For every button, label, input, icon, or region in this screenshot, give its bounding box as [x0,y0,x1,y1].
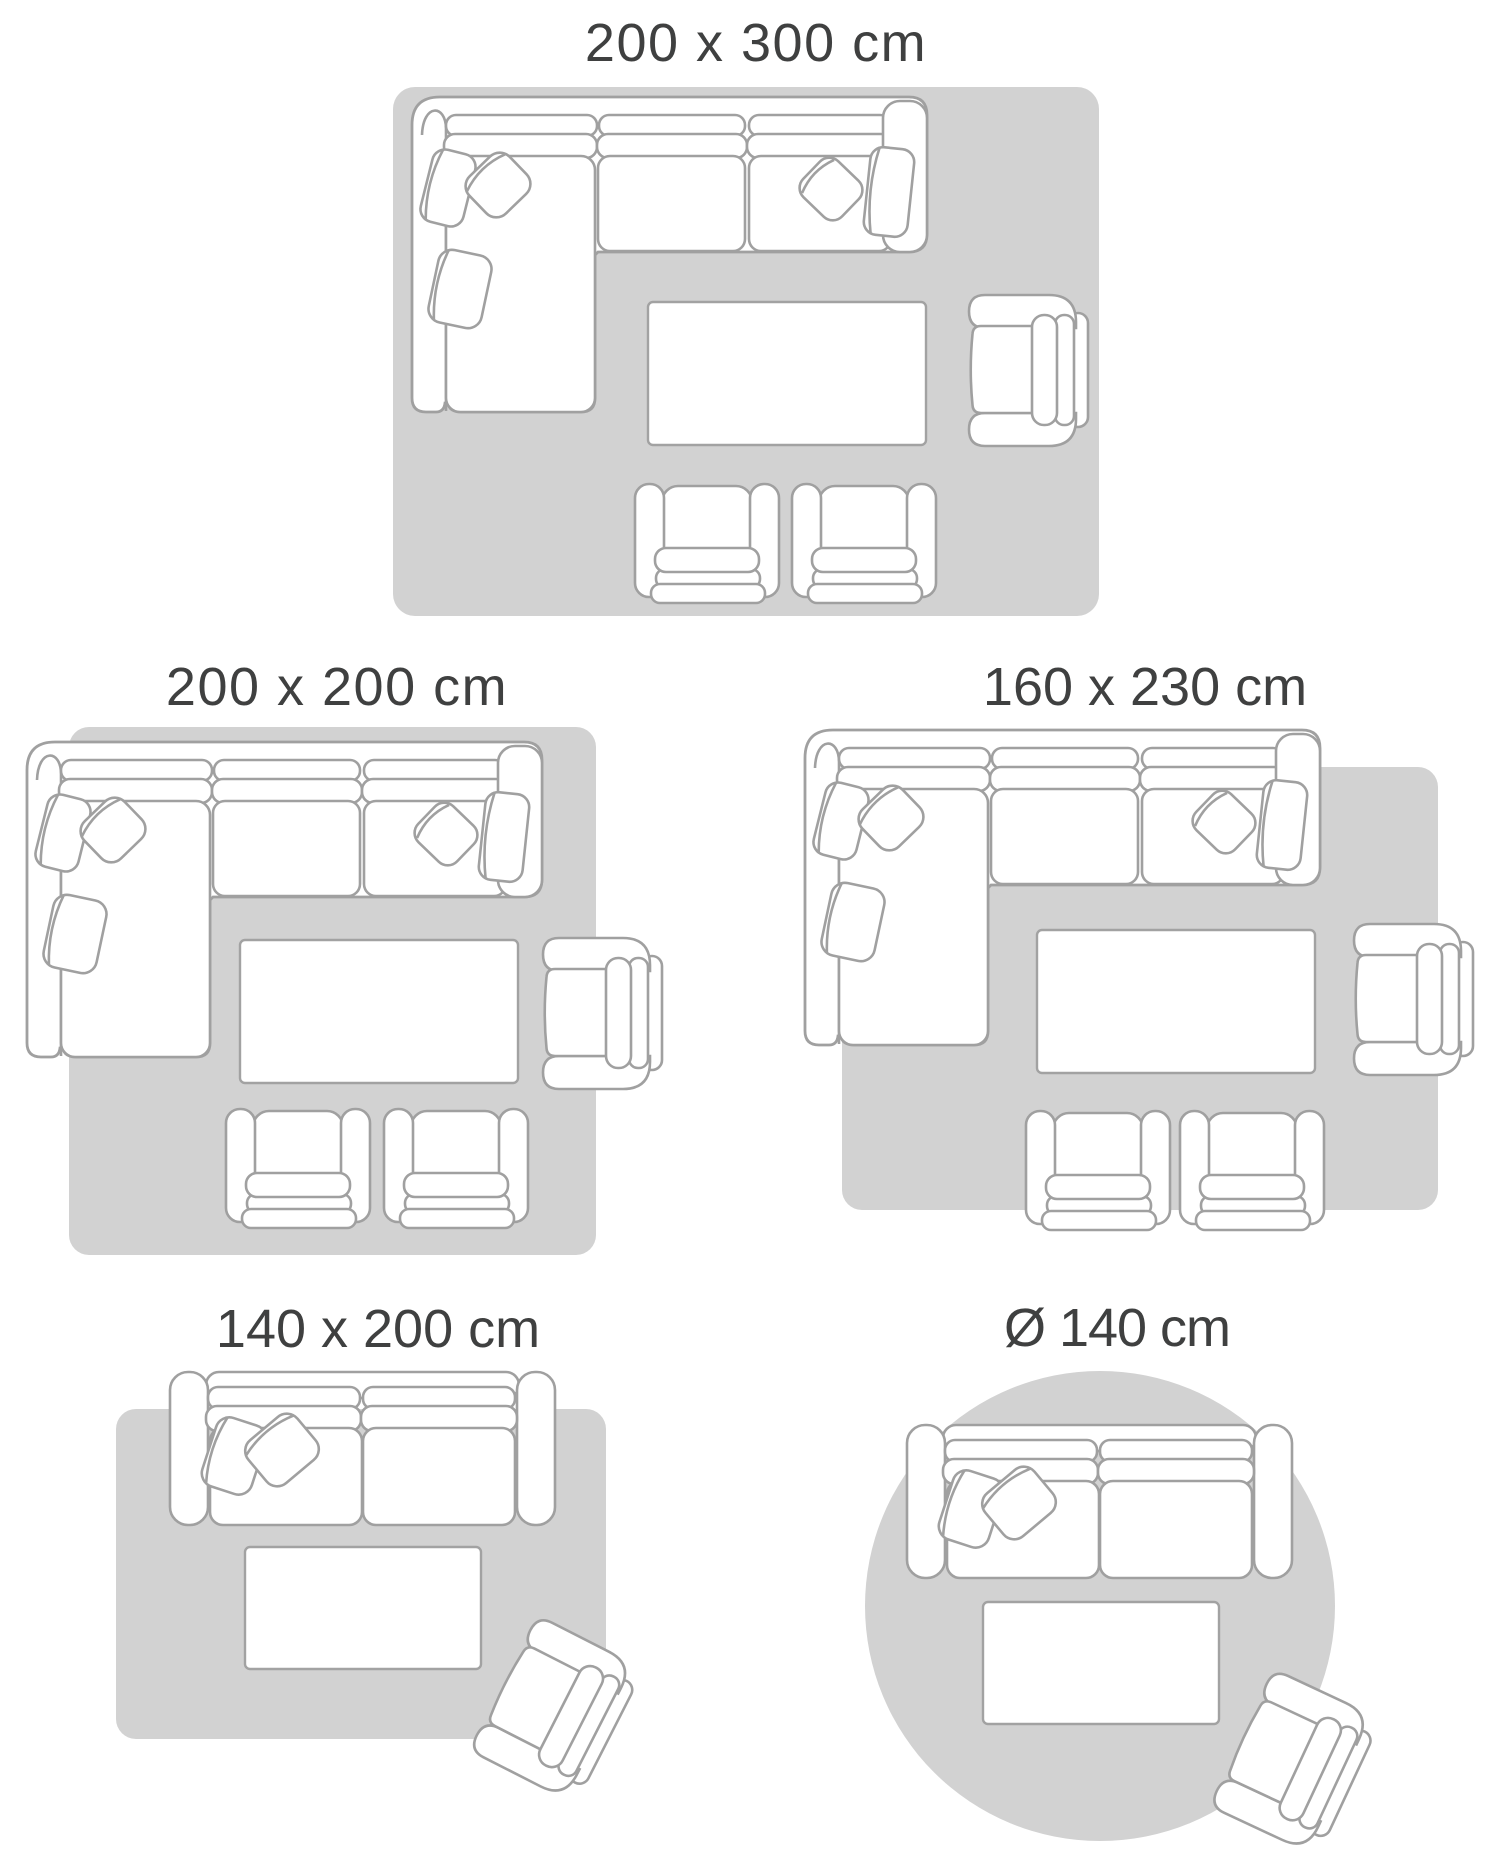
svg-text:160 x 230 cm: 160 x 230 cm [983,657,1307,717]
svg-text:Ø 140 cm: Ø 140 cm [1004,1298,1230,1358]
svg-text:200 x 300 cm: 200 x 300 cm [585,13,927,73]
svg-text:200 x 200 cm: 200 x 200 cm [166,657,508,717]
svg-text:140 x 200 cm: 140 x 200 cm [216,1299,540,1359]
